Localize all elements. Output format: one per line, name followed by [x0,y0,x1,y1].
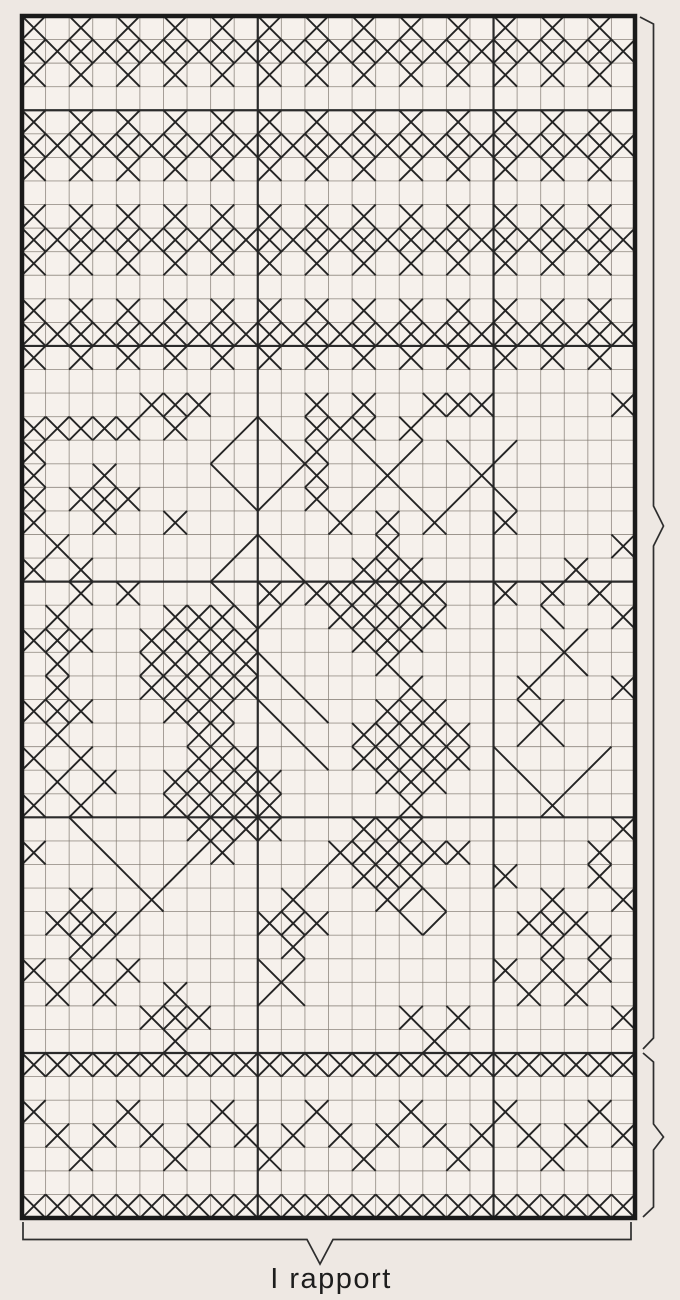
repeat-label: I rapport [270,1263,392,1296]
horizontal-repeat-bracket [23,1222,631,1264]
bottom-edge-bracket [643,1053,664,1217]
pattern-chart [0,0,680,1300]
vertical-repeat-bracket [640,17,664,1049]
